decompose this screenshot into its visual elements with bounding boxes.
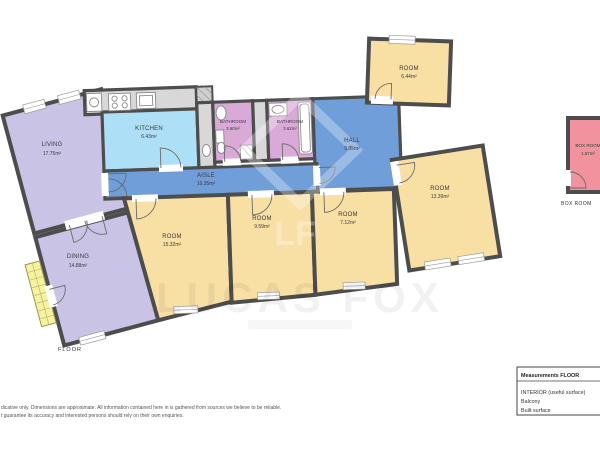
door-gap <box>281 156 299 164</box>
floor-caption: FLOOR <box>58 347 82 353</box>
legend-title: Measurements FLOOR <box>521 373 579 379</box>
sink-icon <box>136 92 156 109</box>
label-dining-area: 14.88m² <box>69 263 88 269</box>
room-6 <box>367 39 451 106</box>
disclaimer-line-1: dicative only. Dimensions are approximat… <box>1 405 281 411</box>
door-gap <box>371 96 393 105</box>
label-kitchen-name: KITCHEN <box>135 126 163 132</box>
label-hall-area: 9.85m² <box>344 146 360 152</box>
door-gap <box>101 173 109 196</box>
watermark-logo-letters: LF <box>274 215 316 253</box>
label-bathroom2-area: 3.62m² <box>283 126 297 131</box>
label-room15-area: 15.32m² <box>163 242 182 248</box>
label-room15-name: ROOM <box>162 234 181 240</box>
label-bathroom1-area: 3.60m² <box>226 126 240 131</box>
label-kitchen-area: 6.43m² <box>141 134 157 140</box>
label-hall-name: HALL <box>344 138 360 144</box>
label-living-area: 17.75m² <box>43 151 62 157</box>
right-room <box>390 145 501 272</box>
door-gap <box>159 164 183 172</box>
label-room9-area: 9.59m² <box>254 224 270 230</box>
label-room13-area: 13.39m² <box>431 194 450 200</box>
door-gap <box>223 158 241 166</box>
box-room-caption: BOX ROOM <box>561 201 592 207</box>
watermark-subtext-bar <box>248 320 352 329</box>
label-aisle-area: 10.35m² <box>197 181 216 187</box>
label-boxroom-name: BOX ROOM <box>575 143 600 148</box>
floor-plan-page: LF LUCAS FOX LIVING 17.75m² DINING 14.88… <box>0 0 600 450</box>
label-room7-area: 7.12m² <box>340 220 356 226</box>
room-13 <box>392 145 500 270</box>
legend-item-interior: INTERIOR (useful surface) <box>521 390 586 396</box>
window <box>389 35 415 44</box>
label-living-name: LIVING <box>42 142 63 148</box>
label-dining-name: DINING <box>67 254 89 260</box>
washing-machine-icon <box>86 93 102 112</box>
stove-icon <box>108 93 131 111</box>
label-room9-name: ROOM <box>252 216 271 222</box>
disclaimer-line-2: t guarantee its accuracy and interested … <box>1 413 184 419</box>
legend-box: Measurements FLOOR INTERIOR (useful surf… <box>517 367 600 415</box>
label-room6-name: ROOM <box>399 66 418 72</box>
label-boxroom-area: 1.87m² <box>581 151 595 156</box>
legend-item-built: Built surface <box>521 408 551 414</box>
label-room7-name: ROOM <box>338 212 357 218</box>
label-room6-area: 6.44m² <box>401 74 417 80</box>
label-aisle-name: AISLE <box>197 173 215 179</box>
label-bathroom2-name: BATHROOM <box>277 119 303 124</box>
label-bathroom1-name: BATHROOM <box>220 119 246 124</box>
vent-shaft <box>196 86 213 103</box>
disclaimer: dicative only. Dimensions are approximat… <box>1 405 281 419</box>
label-room13-name: ROOM <box>430 186 449 192</box>
floor-plan-svg: LF LUCAS FOX LIVING 17.75m² DINING 14.88… <box>0 0 600 450</box>
legend-item-balcony: Balcony <box>521 399 540 405</box>
washbasin-icon <box>216 106 226 120</box>
watermark-brand-text: LUCAS FOX <box>156 274 444 321</box>
